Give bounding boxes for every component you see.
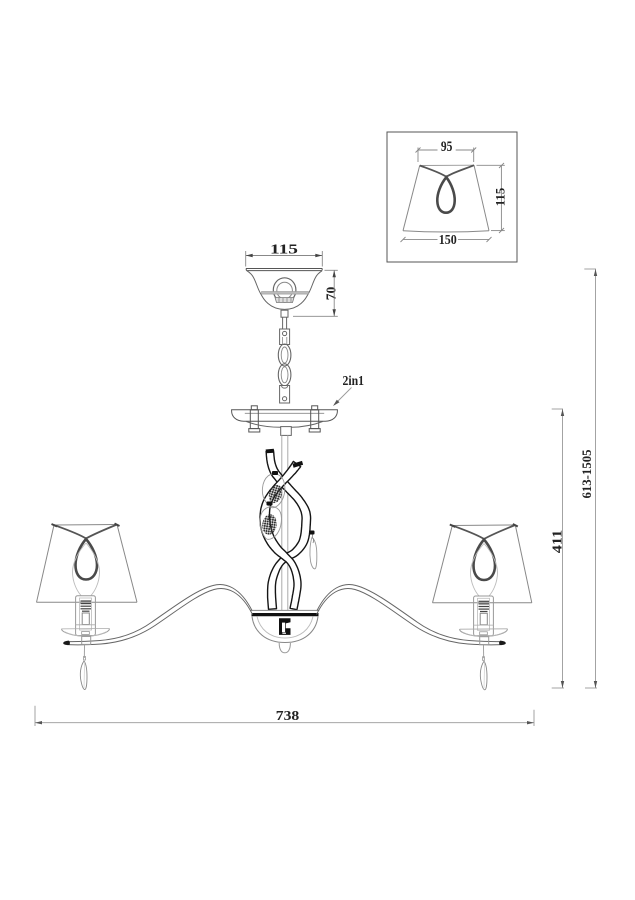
svg-text:115: 115: [493, 187, 508, 206]
svg-text:95: 95: [441, 139, 453, 155]
svg-text:150: 150: [439, 233, 457, 248]
svg-text:411: 411: [551, 530, 566, 554]
svg-text:2in1: 2in1: [343, 373, 365, 388]
svg-text:613-1505: 613-1505: [580, 450, 594, 499]
svg-text:738: 738: [276, 709, 300, 724]
svg-text:70: 70: [324, 287, 339, 301]
